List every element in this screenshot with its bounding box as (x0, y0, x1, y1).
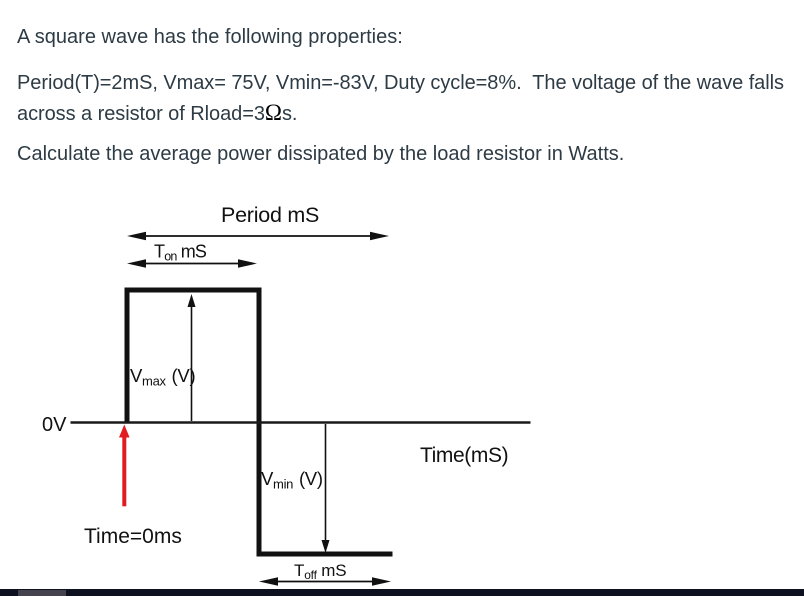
svg-text:Period mS: Period mS (221, 203, 319, 227)
svg-text:Time=0ms: Time=0ms (84, 525, 182, 548)
svg-text:Vmax (V): Vmax (V) (130, 365, 195, 389)
svg-text:Toff mS: Toff mS (294, 561, 346, 582)
svg-text:Vmin (V): Vmin (V) (261, 468, 323, 492)
svg-text:Ton mS: Ton mS (154, 242, 207, 264)
svg-text:Time(mS): Time(mS) (420, 444, 508, 467)
svg-text:0V: 0V (42, 414, 67, 436)
